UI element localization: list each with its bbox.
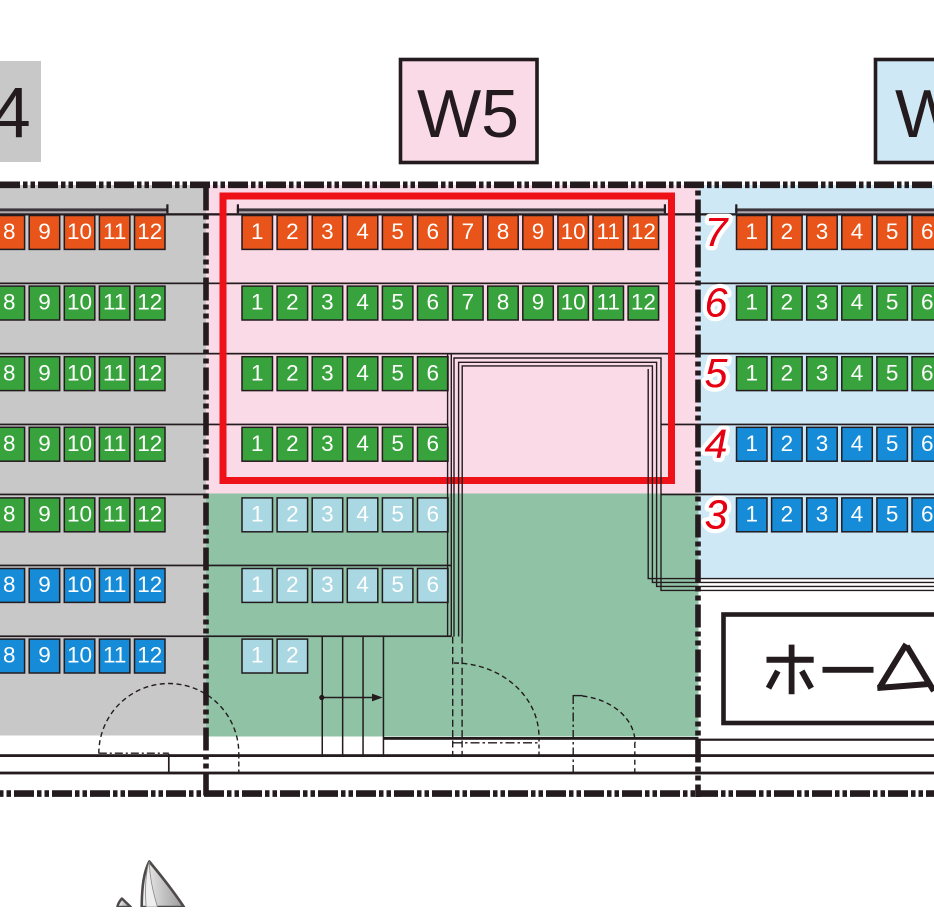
- svg-text:1: 1: [251, 502, 264, 527]
- svg-text:3: 3: [816, 502, 829, 527]
- svg-text:2: 2: [781, 360, 794, 385]
- svg-text:2: 2: [781, 219, 794, 244]
- svg-text:4: 4: [851, 431, 864, 456]
- svg-text:6: 6: [921, 360, 934, 385]
- svg-text:6: 6: [921, 290, 934, 315]
- svg-text:9: 9: [38, 502, 51, 527]
- svg-text:10: 10: [561, 290, 586, 315]
- svg-text:12: 12: [631, 290, 656, 315]
- svg-text:1: 1: [251, 572, 264, 597]
- svg-text:12: 12: [137, 290, 162, 315]
- svg-text:2: 2: [286, 290, 299, 315]
- svg-text:9: 9: [38, 219, 51, 244]
- svg-text:6: 6: [427, 219, 440, 244]
- svg-text:11: 11: [103, 360, 126, 385]
- svg-text:11: 11: [103, 290, 126, 315]
- svg-text:6: 6: [427, 290, 440, 315]
- svg-text:3: 3: [321, 502, 334, 527]
- svg-text:12: 12: [137, 502, 162, 527]
- svg-text:3: 3: [816, 219, 829, 244]
- svg-text:5: 5: [391, 502, 404, 527]
- svg-text:5: 5: [886, 219, 899, 244]
- svg-text:9: 9: [38, 290, 51, 315]
- svg-text:11: 11: [103, 643, 126, 668]
- svg-text:9: 9: [532, 290, 545, 315]
- svg-text:11: 11: [597, 219, 620, 244]
- svg-text:6: 6: [427, 572, 440, 597]
- svg-text:4: 4: [356, 290, 369, 315]
- svg-text:5: 5: [886, 360, 899, 385]
- svg-text:10: 10: [561, 219, 586, 244]
- svg-text:4: 4: [851, 290, 864, 315]
- svg-text:3: 3: [816, 290, 829, 315]
- svg-text:6: 6: [427, 502, 440, 527]
- svg-text:3: 3: [816, 431, 829, 456]
- svg-text:5: 5: [886, 502, 899, 527]
- svg-text:5: 5: [391, 219, 404, 244]
- svg-text:1: 1: [251, 643, 264, 668]
- svg-text:9: 9: [532, 219, 545, 244]
- svg-text:2: 2: [286, 360, 299, 385]
- svg-text:6: 6: [705, 280, 728, 326]
- svg-text:5: 5: [886, 431, 899, 456]
- svg-text:4: 4: [705, 421, 728, 467]
- svg-text:11: 11: [103, 219, 126, 244]
- svg-text:1: 1: [251, 360, 264, 385]
- svg-text:11: 11: [103, 431, 126, 456]
- svg-text:8: 8: [3, 643, 16, 668]
- svg-text:2: 2: [286, 643, 299, 668]
- svg-text:W5: W5: [417, 76, 519, 152]
- svg-text:10: 10: [67, 431, 92, 456]
- svg-text:12: 12: [137, 360, 162, 385]
- svg-text:10: 10: [67, 572, 92, 597]
- svg-text:12: 12: [137, 219, 162, 244]
- svg-text:9: 9: [38, 360, 51, 385]
- svg-text:5: 5: [705, 350, 728, 396]
- svg-text:4: 4: [356, 431, 369, 456]
- svg-text:10: 10: [67, 290, 92, 315]
- svg-text:1: 1: [251, 290, 264, 315]
- svg-text:1: 1: [251, 219, 264, 244]
- svg-text:6: 6: [921, 502, 934, 527]
- svg-text:4: 4: [0, 74, 31, 153]
- svg-text:11: 11: [103, 572, 126, 597]
- svg-text:3: 3: [321, 360, 334, 385]
- svg-text:4: 4: [851, 360, 864, 385]
- svg-text:3: 3: [321, 431, 334, 456]
- svg-text:7: 7: [462, 219, 475, 244]
- svg-text:4: 4: [851, 502, 864, 527]
- svg-text:6: 6: [427, 360, 440, 385]
- svg-text:1: 1: [746, 290, 759, 315]
- svg-text:2: 2: [286, 219, 299, 244]
- svg-text:4: 4: [851, 219, 864, 244]
- svg-text:8: 8: [3, 360, 16, 385]
- svg-text:6: 6: [921, 431, 934, 456]
- svg-text:4: 4: [356, 360, 369, 385]
- svg-text:8: 8: [3, 431, 16, 456]
- svg-text:11: 11: [103, 502, 126, 527]
- svg-text:W6: W6: [895, 76, 934, 152]
- svg-text:7: 7: [462, 290, 475, 315]
- svg-text:8: 8: [497, 219, 510, 244]
- svg-text:9: 9: [38, 572, 51, 597]
- svg-text:2: 2: [781, 431, 794, 456]
- svg-text:8: 8: [3, 572, 16, 597]
- svg-text:7: 7: [705, 209, 730, 255]
- svg-text:12: 12: [631, 219, 656, 244]
- svg-text:3: 3: [705, 491, 728, 537]
- svg-text:11: 11: [597, 290, 620, 315]
- svg-text:12: 12: [137, 572, 162, 597]
- svg-text:5: 5: [391, 572, 404, 597]
- svg-text:3: 3: [816, 360, 829, 385]
- svg-text:5: 5: [391, 290, 404, 315]
- svg-text:10: 10: [67, 360, 92, 385]
- svg-text:1: 1: [746, 431, 759, 456]
- svg-text:2: 2: [781, 290, 794, 315]
- svg-text:5: 5: [391, 431, 404, 456]
- svg-text:5: 5: [391, 360, 404, 385]
- svg-text:4: 4: [356, 572, 369, 597]
- svg-text:9: 9: [38, 431, 51, 456]
- svg-text:3: 3: [321, 290, 334, 315]
- svg-text:12: 12: [137, 431, 162, 456]
- svg-text:2: 2: [286, 502, 299, 527]
- svg-text:10: 10: [67, 502, 92, 527]
- svg-text:2: 2: [286, 431, 299, 456]
- svg-text:4: 4: [356, 502, 369, 527]
- svg-text:2: 2: [286, 572, 299, 597]
- svg-text:9: 9: [38, 643, 51, 668]
- svg-text:3: 3: [321, 572, 334, 597]
- svg-text:5: 5: [886, 290, 899, 315]
- svg-text:12: 12: [137, 643, 162, 668]
- svg-text:8: 8: [3, 502, 16, 527]
- svg-text:8: 8: [3, 219, 16, 244]
- svg-text:1: 1: [746, 360, 759, 385]
- svg-text:1: 1: [251, 431, 264, 456]
- svg-text:8: 8: [3, 290, 16, 315]
- svg-text:2: 2: [781, 502, 794, 527]
- svg-text:10: 10: [67, 643, 92, 668]
- svg-text:8: 8: [497, 290, 510, 315]
- svg-text:4: 4: [356, 219, 369, 244]
- svg-text:3: 3: [321, 219, 334, 244]
- svg-text:1: 1: [746, 502, 759, 527]
- svg-text:6: 6: [921, 219, 934, 244]
- svg-text:1: 1: [746, 219, 759, 244]
- svg-text:6: 6: [427, 431, 440, 456]
- svg-text:10: 10: [67, 219, 92, 244]
